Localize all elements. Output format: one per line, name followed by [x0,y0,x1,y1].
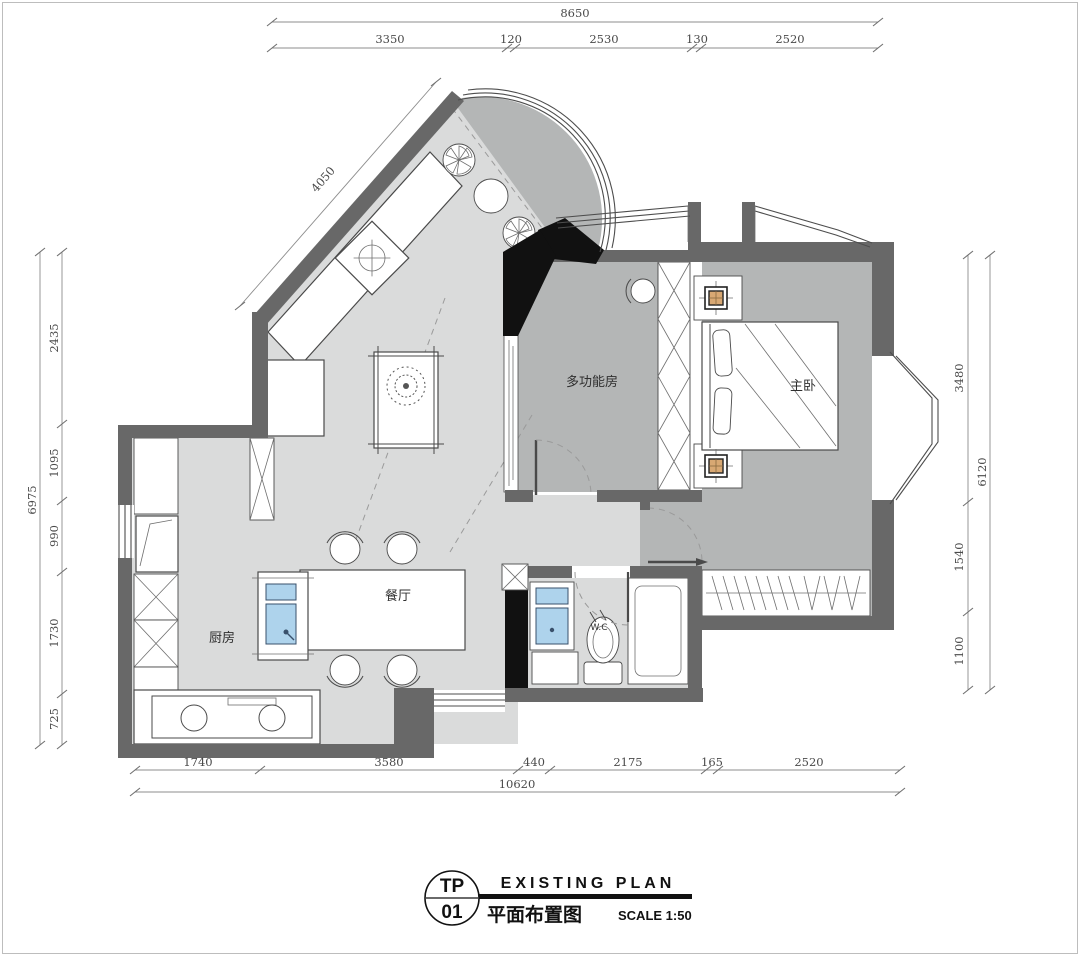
drawing-sheet: 厨房 [0,0,1080,956]
sheet-border [2,2,1078,954]
